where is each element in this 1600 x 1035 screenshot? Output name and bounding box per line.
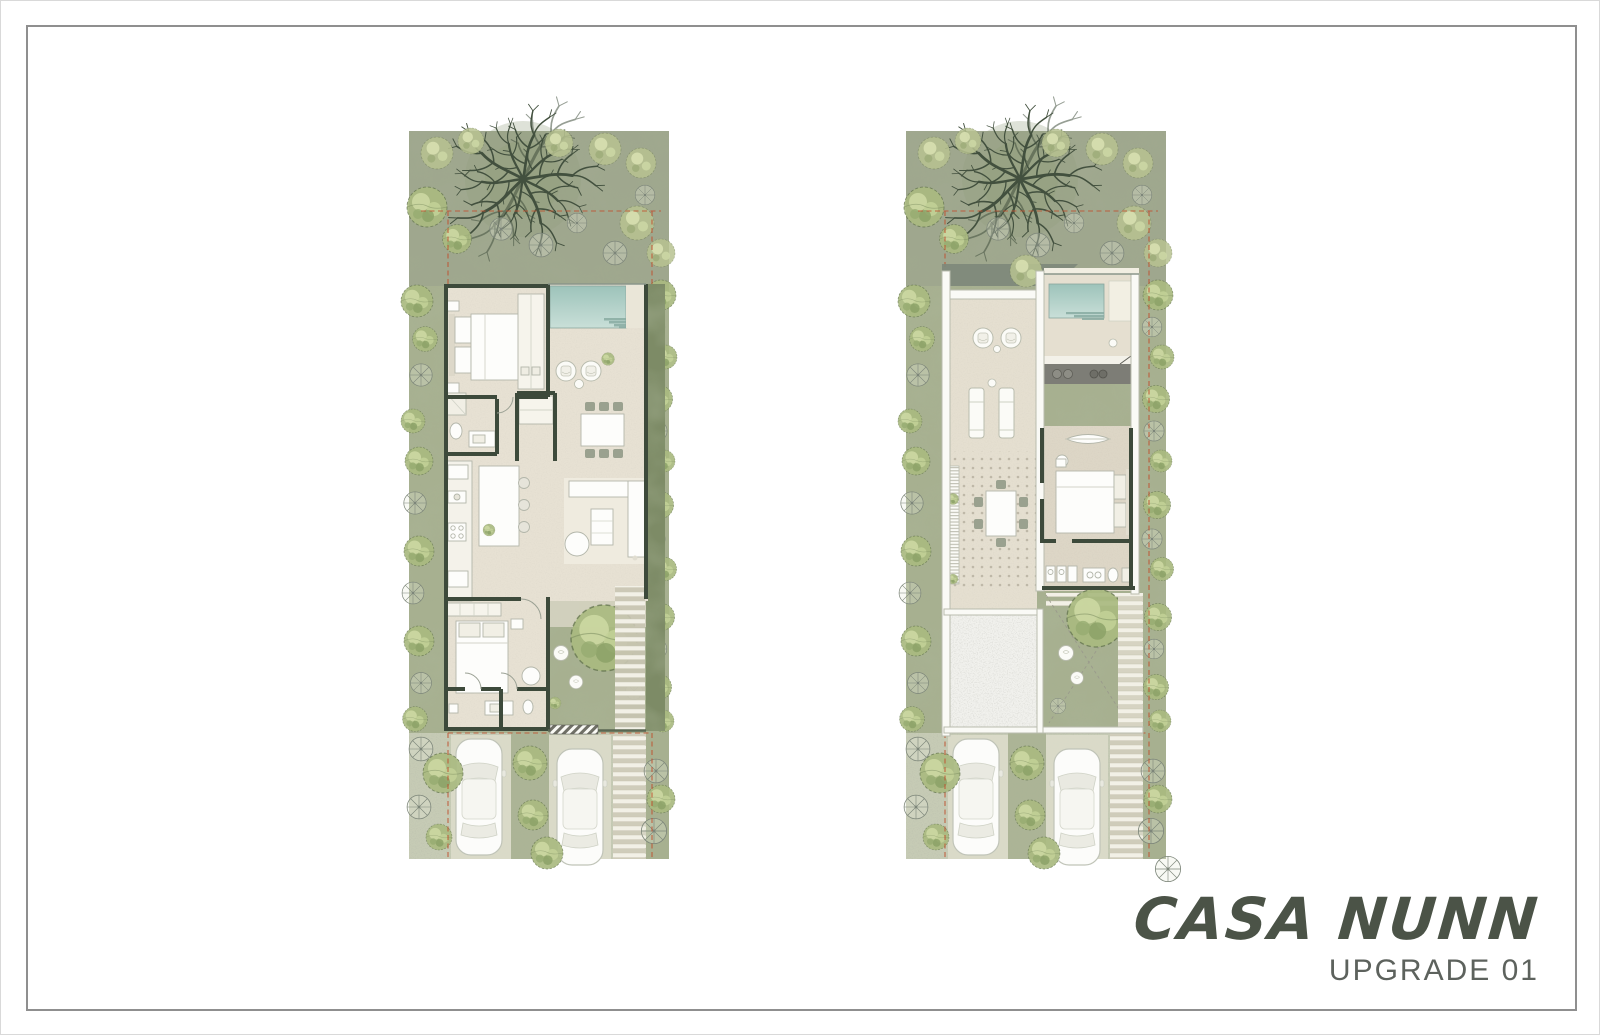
entry-mat xyxy=(550,725,598,734)
pool-bench xyxy=(1109,281,1131,321)
pool xyxy=(550,284,646,329)
project-title: CASA NUNN xyxy=(1131,889,1541,950)
gravel-court xyxy=(950,615,1037,727)
dining-area xyxy=(581,402,624,458)
upper-garden xyxy=(1044,589,1143,731)
ground-floor-building xyxy=(444,284,665,734)
side-walkway xyxy=(615,586,645,731)
living-room xyxy=(564,478,646,564)
closet-hall xyxy=(519,396,553,424)
title-block: CASA NUNN UPGRADE 01 xyxy=(1134,889,1539,988)
presentation-sheet: CASA NUNN UPGRADE 01 xyxy=(0,0,1600,1035)
site-plan-ground-floor xyxy=(389,111,689,879)
outdoor-kitchen xyxy=(1044,356,1139,384)
project-subtitle: UPGRADE 01 xyxy=(1134,954,1539,988)
pool-deck xyxy=(626,284,646,328)
upper-pool xyxy=(1049,281,1131,321)
sheet-border-frame xyxy=(26,25,1577,1011)
site-plan-upper-floor xyxy=(886,111,1186,879)
